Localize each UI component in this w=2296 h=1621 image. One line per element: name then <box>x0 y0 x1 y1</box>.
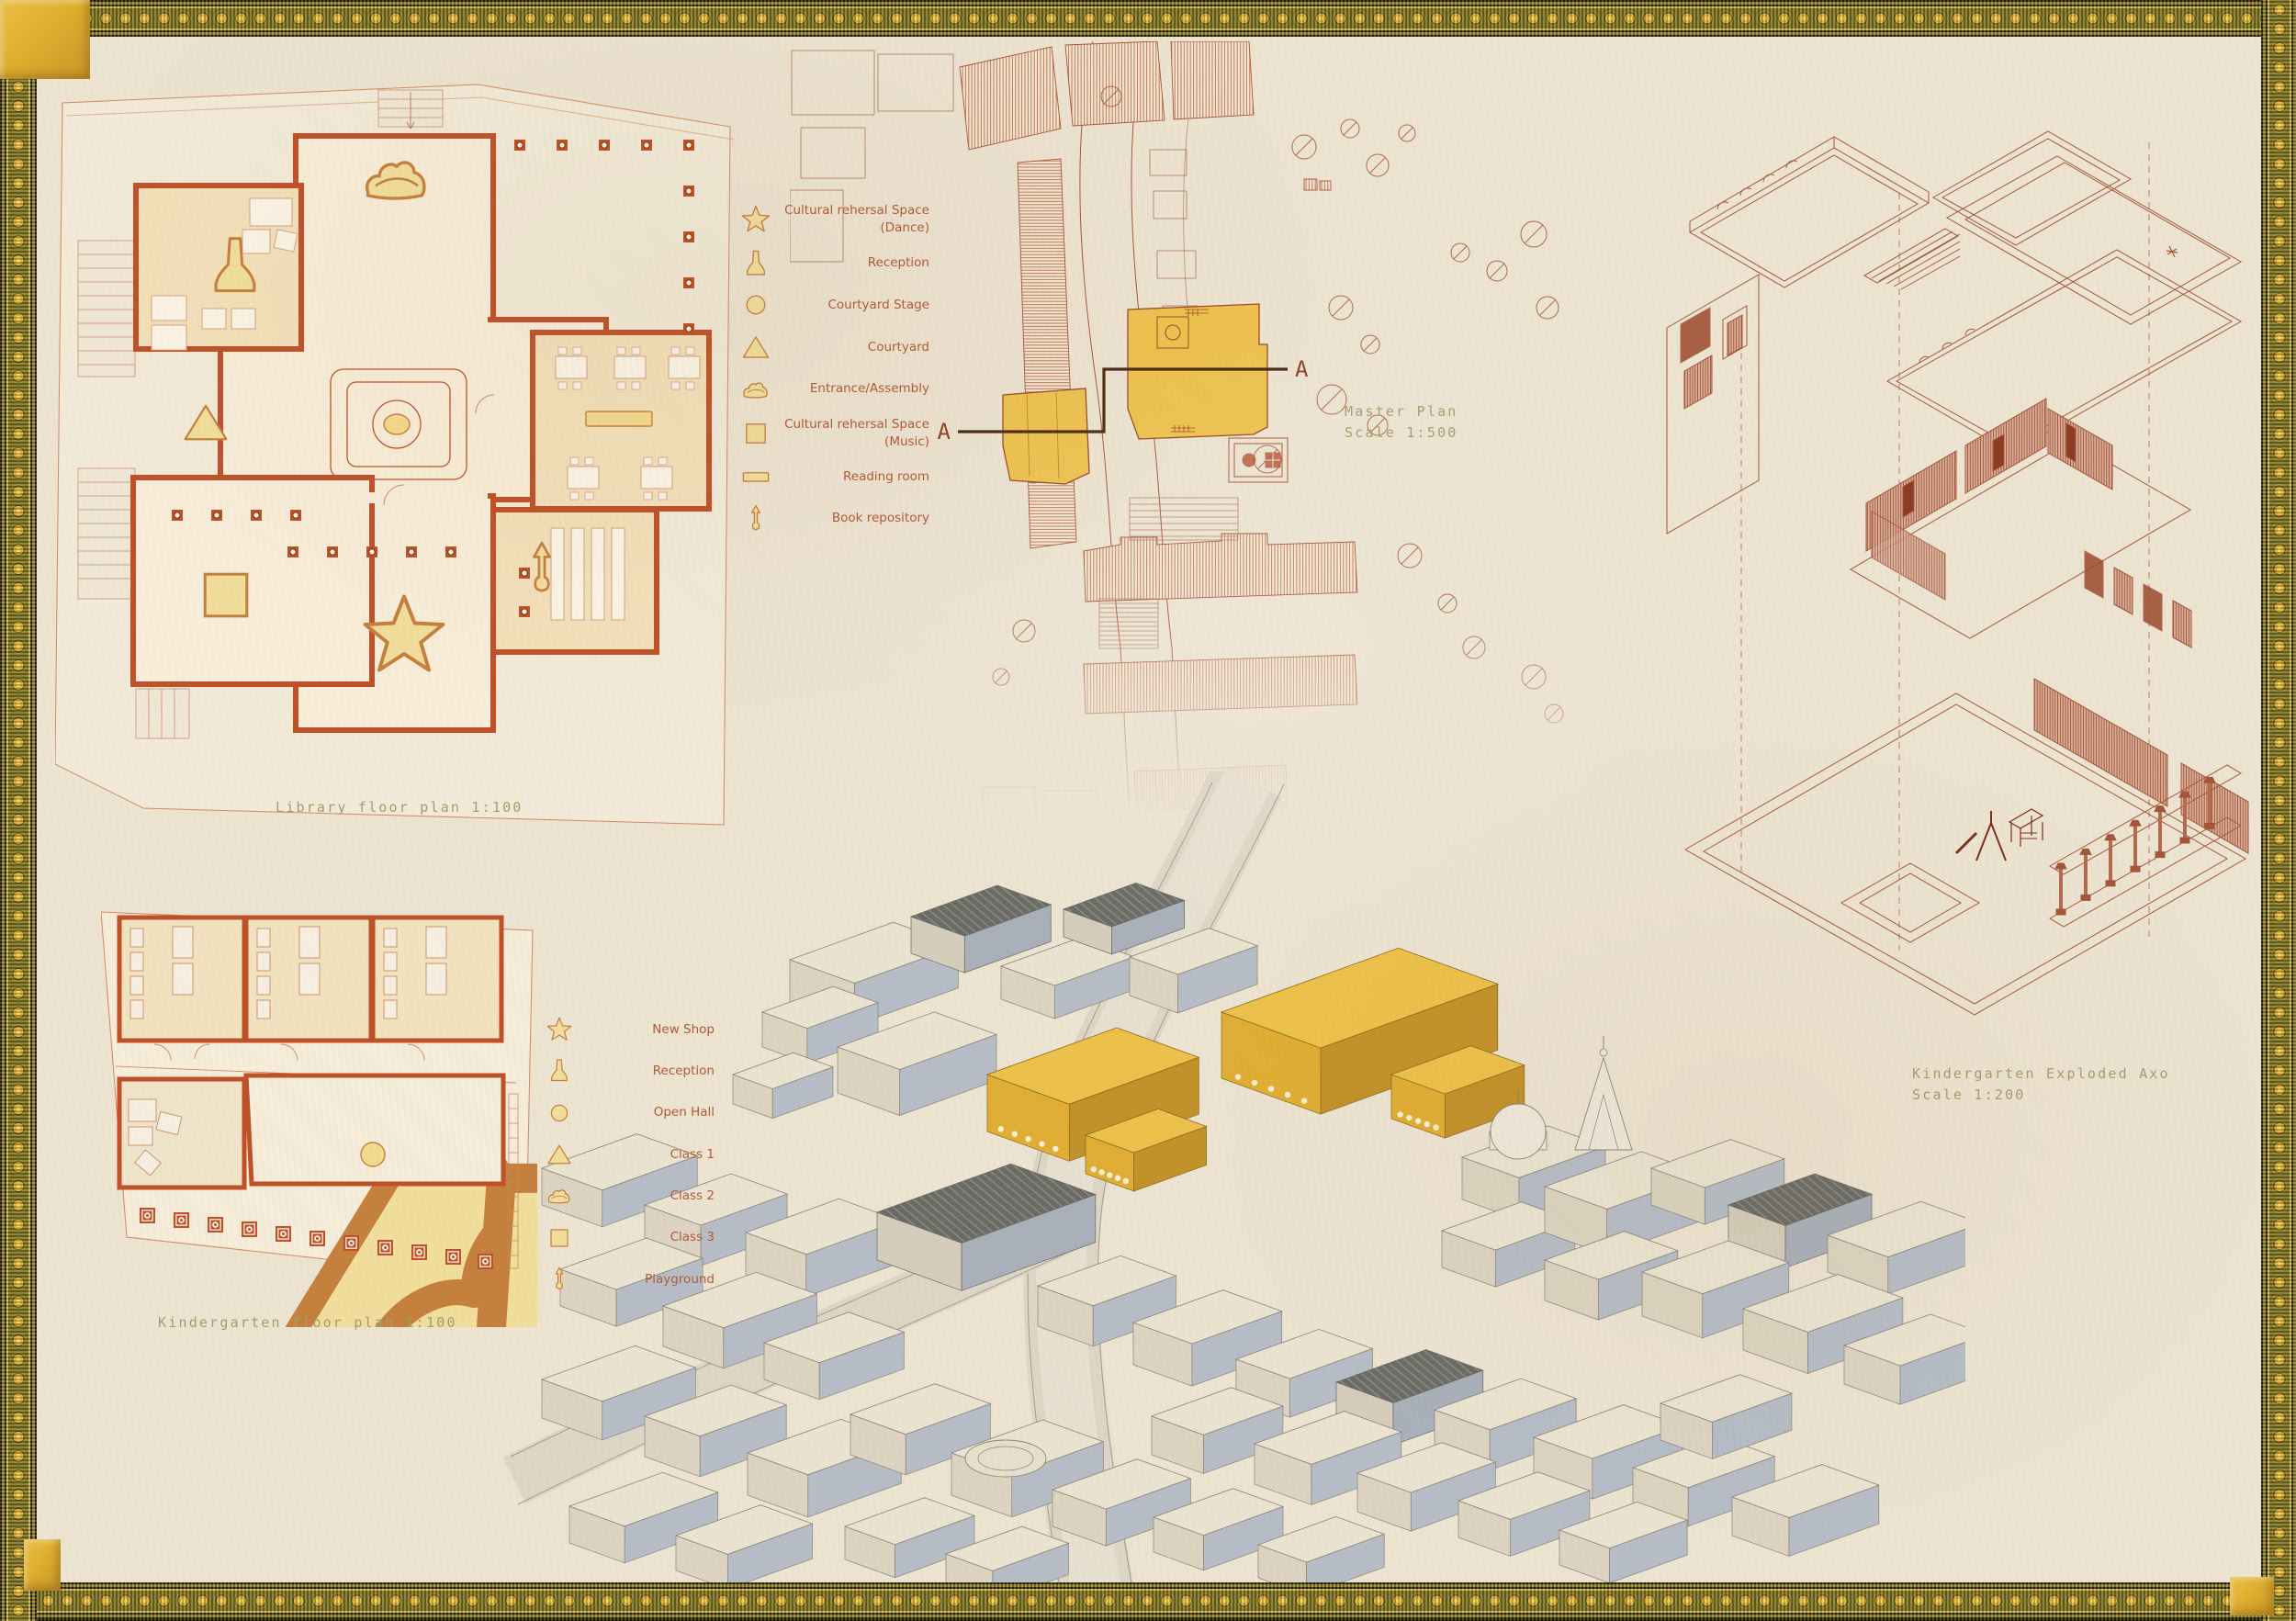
kindergarten-floor-plan <box>101 895 537 1327</box>
playground-equipment <box>1956 809 2043 861</box>
library-plan-title: Library floor plan 1:100 <box>276 797 523 818</box>
legend-item: Open Hall <box>546 1099 715 1127</box>
kindergarten-legend: New Shop Reception Open Hall Class 1 Cla… <box>546 1016 715 1293</box>
kindergarten-plan-title: Kindergarten floor plan 1:100 <box>158 1312 457 1334</box>
border-right <box>2261 0 2296 1621</box>
round-plaza <box>965 1440 1046 1477</box>
legend-label: Class 2 <box>573 1188 715 1205</box>
open-hall-icon <box>546 1099 573 1127</box>
legend-label: New Shop <box>573 1021 715 1039</box>
legend-item: Class 3 <box>546 1224 715 1252</box>
music-space-icon <box>205 574 247 616</box>
master-plan-title: Master PlanScale 1:500 <box>1345 401 1458 445</box>
legend-item: Entrance/Assembly <box>740 374 929 405</box>
music-space-icon <box>740 418 771 449</box>
legend-label: Open Hall <box>573 1104 715 1121</box>
reading-room-icon <box>740 461 771 492</box>
border-left <box>0 0 37 1621</box>
legend-item: Courtyard <box>740 332 929 363</box>
legend-label: Book repository <box>771 510 929 527</box>
legend-label: Reception <box>771 254 929 272</box>
class-2-icon <box>546 1182 573 1210</box>
legend-item: Cultural rehersal Space(Music) <box>740 416 929 451</box>
courtyard-stage <box>384 414 410 434</box>
courtyard-icon <box>740 332 771 363</box>
legend-item: New Shop <box>546 1016 715 1043</box>
legend-item: Book repository <box>740 503 929 535</box>
section-label-right: A <box>1295 356 1309 382</box>
masterplan-kindergarten <box>1003 388 1089 484</box>
legend-item: Playground <box>546 1266 715 1293</box>
class-3-icon <box>546 1224 573 1252</box>
presentation-board: A A <box>0 0 2296 1621</box>
legend-label: Cultural rehersal Space <box>771 202 929 220</box>
reading-room-icon <box>586 411 652 426</box>
legend-item: Reception <box>740 248 929 279</box>
legend-label: Playground <box>573 1271 715 1289</box>
legend-item: Cultural rehersal Space(Dance) <box>740 202 929 237</box>
playground-icon <box>546 1266 573 1293</box>
legend-label: Courtyard <box>771 339 929 356</box>
legend-item: Reading room <box>740 461 929 492</box>
temple-dome <box>1491 1104 1546 1159</box>
gold-corner-top-left <box>0 0 90 79</box>
new-shop-star-icon <box>546 1016 573 1043</box>
masterplan-road <box>1080 41 1196 850</box>
village-buildings <box>542 883 1965 1602</box>
legend-label: Courtyard Stage <box>771 297 929 314</box>
legend-item: Courtyard Stage <box>740 289 929 321</box>
legend-label: Reception <box>573 1063 715 1080</box>
border-top <box>0 0 2296 37</box>
library-floor-plan <box>55 83 735 831</box>
gold-corner-bottom-right <box>2230 1577 2274 1615</box>
entrance-assembly-icon <box>740 374 771 405</box>
temple-plan <box>1229 438 1288 482</box>
legend-item: Reception <box>546 1057 715 1085</box>
legend-sublabel: (Music) <box>771 433 929 451</box>
legend-item: Class 1 <box>546 1141 715 1168</box>
legend-label: Class 1 <box>573 1146 715 1164</box>
book-repository-icon <box>740 503 771 535</box>
legend-item: Class 2 <box>546 1182 715 1210</box>
gold-corner-bottom-left <box>24 1539 61 1591</box>
legend-label: Cultural rehersal Space <box>771 416 929 433</box>
legend-label: Reading room <box>771 468 929 486</box>
temple-spire <box>1575 1058 1632 1150</box>
open-hall-icon <box>361 1143 385 1166</box>
library-legend: Cultural rehersal Space(Dance) Reception… <box>740 202 929 535</box>
reception-icon <box>740 248 771 279</box>
legend-label: Entrance/Assembly <box>771 380 929 398</box>
border-bottom <box>0 1582 2296 1621</box>
courtyard-stage-icon <box>740 289 771 321</box>
open-hall <box>246 1075 503 1184</box>
section-label-left: A <box>938 419 951 445</box>
legend-label: Class 3 <box>573 1229 715 1246</box>
legend-sublabel: (Dance) <box>771 220 929 237</box>
class-1-icon <box>546 1141 573 1168</box>
dance-space-star-icon <box>740 204 771 235</box>
reception-icon <box>546 1057 573 1085</box>
masterplan-library <box>1128 304 1267 439</box>
axo-title: Kindergarten Exploded AxoScale 1:200 <box>1912 1064 2170 1107</box>
